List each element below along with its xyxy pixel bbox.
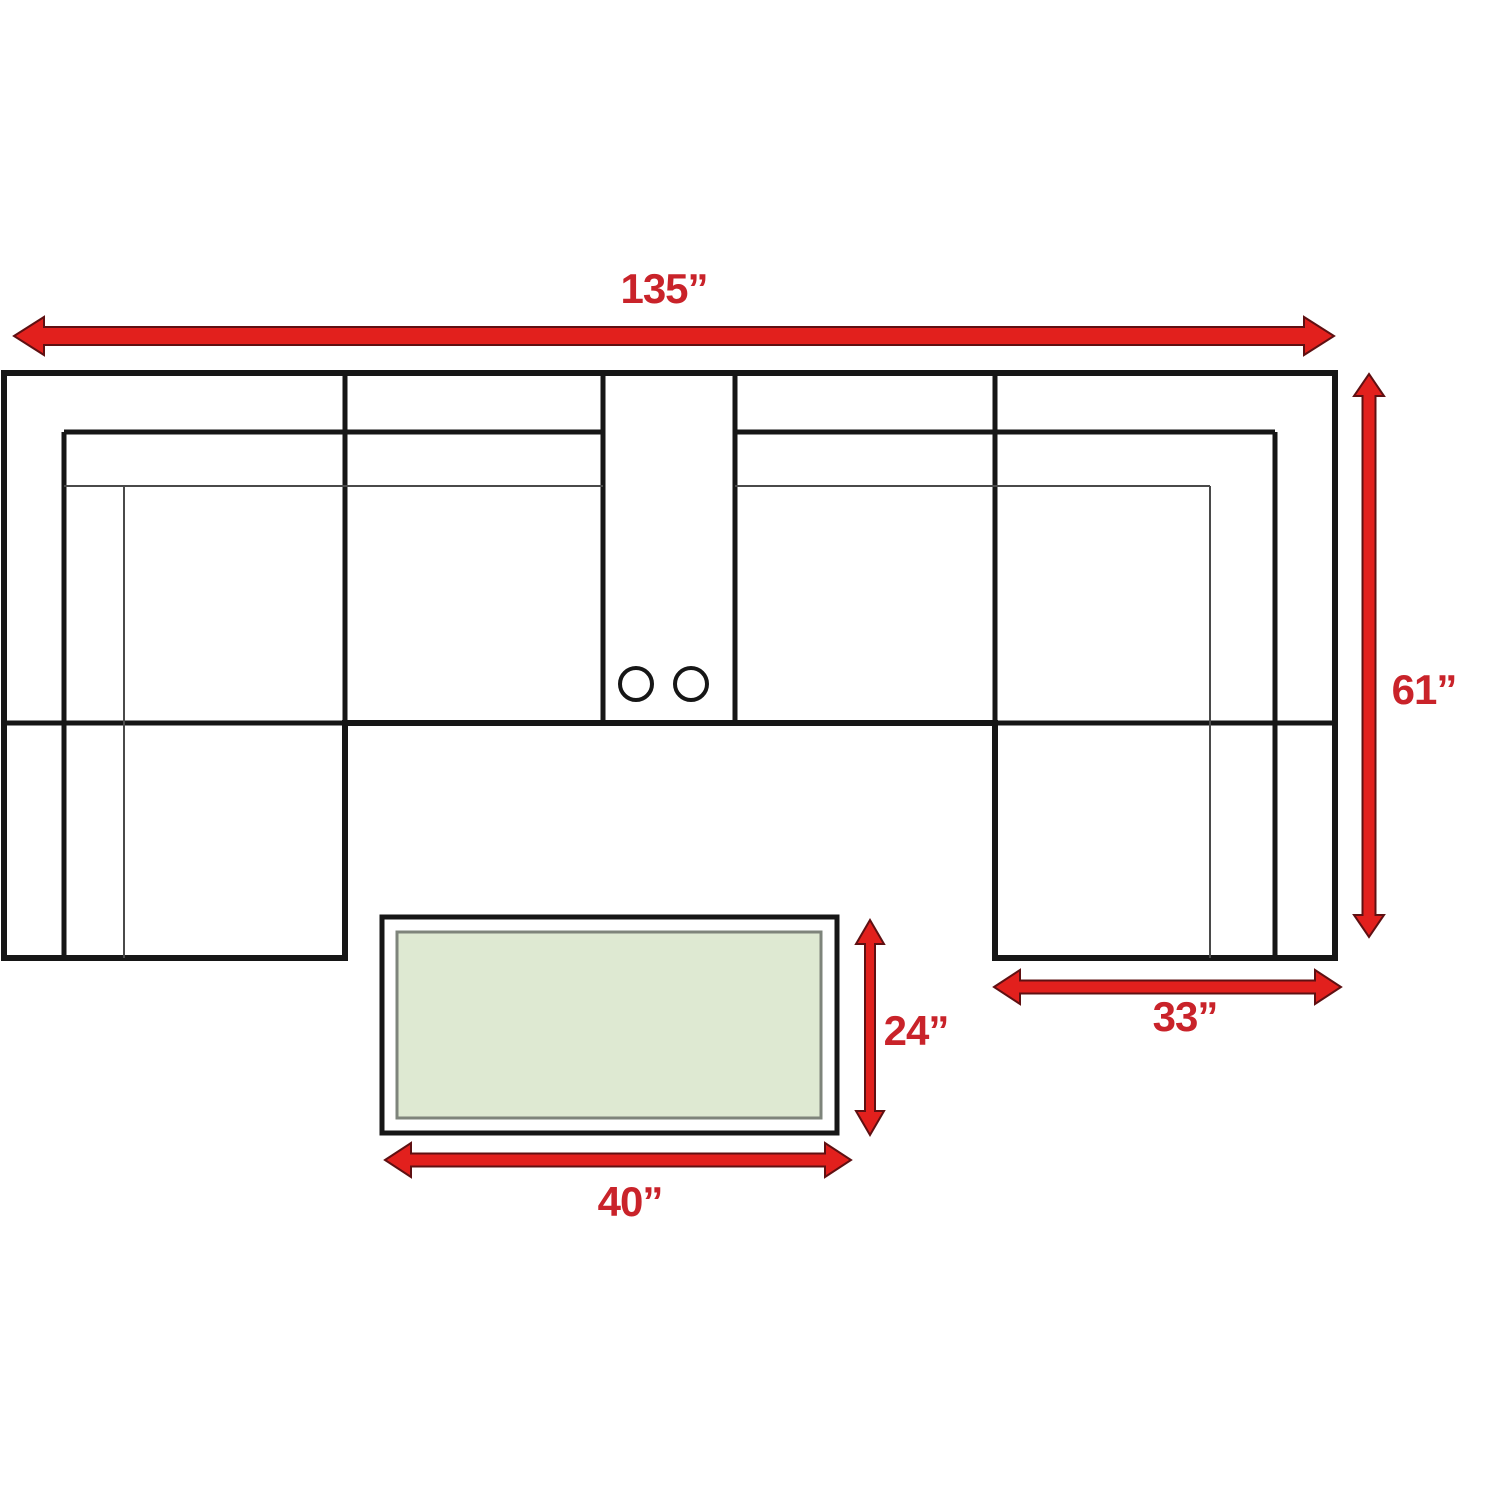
table-depth-label: 24” bbox=[884, 1010, 949, 1052]
sectional-sofa bbox=[4, 373, 1335, 958]
chaise-width-label: 33” bbox=[1153, 996, 1218, 1038]
sofa-outline bbox=[4, 373, 1335, 958]
diagram-canvas bbox=[0, 0, 1500, 1500]
furniture-dimension-diagram: 135” 61” 33” 24” 40” bbox=[0, 0, 1500, 1500]
coffee-table-top bbox=[397, 932, 821, 1118]
cup-holder-right-icon bbox=[675, 668, 707, 700]
table-width-label: 40” bbox=[598, 1181, 663, 1223]
overall-depth-arrow bbox=[1354, 374, 1384, 937]
overall-width-arrow bbox=[14, 317, 1334, 355]
cup-holder-left-icon bbox=[620, 668, 652, 700]
overall-width-label: 135” bbox=[620, 268, 707, 310]
overall-depth-label: 61” bbox=[1392, 669, 1457, 711]
coffee-table bbox=[382, 917, 837, 1133]
table-width-arrow bbox=[385, 1143, 851, 1177]
table-depth-arrow bbox=[856, 920, 884, 1135]
